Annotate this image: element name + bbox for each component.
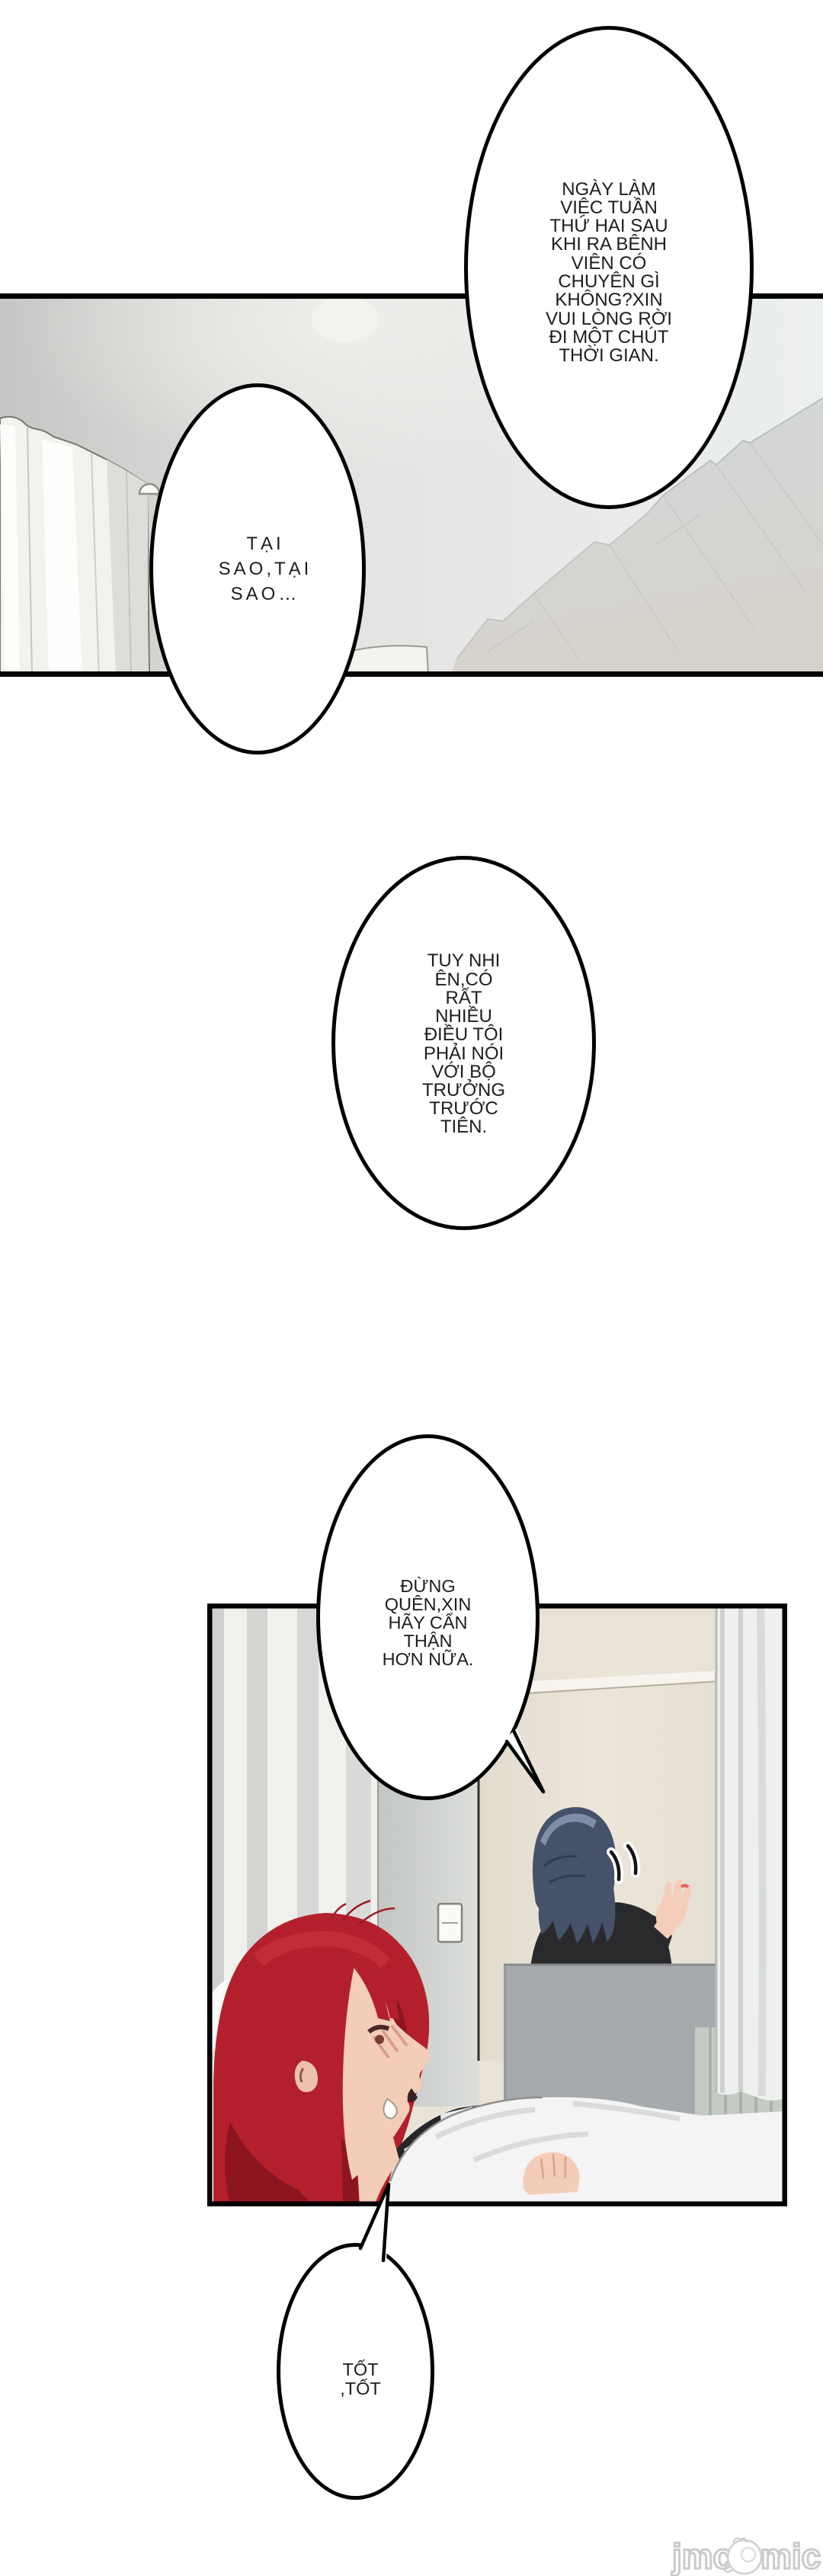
svg-text:jmc: jmc [671, 2536, 732, 2576]
svg-text:mic: mic [761, 2536, 821, 2576]
